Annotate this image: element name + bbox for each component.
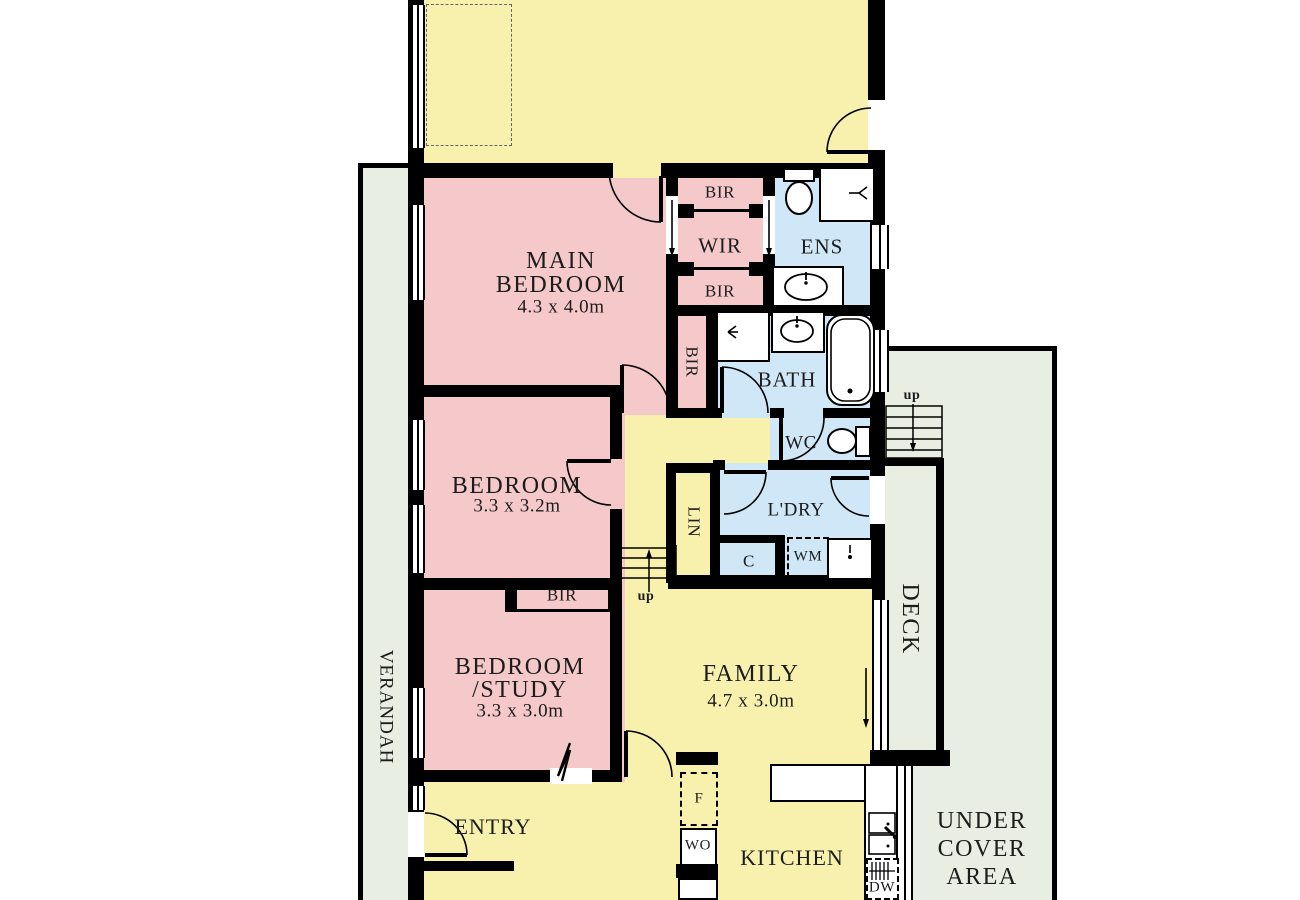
kitchen-sink [869,813,897,854]
label-cupboard: C [743,553,755,570]
label-bir-strip: BIR [684,346,701,377]
slider-arrows [669,200,869,728]
label-bedroom-dims: 3.3 x 3.2m [473,497,560,516]
label-main-bedroom-1: MAIN [526,249,596,273]
label-bir-mid: BIR [705,283,735,300]
shower-head-ens [849,187,867,199]
shower-head-bath [728,326,738,338]
laundry-tub-tap [848,545,852,559]
label-wc: WC [785,434,817,453]
dishwasher-hatch [869,862,895,880]
label-main-bedroom-2: BEDROOM [496,273,627,297]
label-dishwasher: DW [869,881,895,896]
label-ens: ENS [801,237,844,258]
label-wm: WM [794,550,823,565]
label-up-internal: up [638,590,655,604]
label-bedroom-study-2: /STUDY [472,678,568,702]
symbols-overlay [0,0,1300,900]
label-entry: ENTRY [454,816,531,838]
toilet-wc [828,427,870,456]
label-under-cover-2: COVER [938,837,1027,861]
label-bedroom: BEDROOM [452,474,583,498]
stairs-external [886,404,942,458]
label-under-cover-1: UNDER [937,809,1027,833]
label-wall-oven: WO [685,839,711,854]
label-verandah: VERANDAH [377,650,396,765]
floor-plan: MAIN BEDROOM 4.3 x 4.0m BEDROOM 3.3 x 3.… [0,0,1300,900]
label-bedroom-study-dims: 3.3 x 3.0m [476,702,563,721]
label-lin: LIN [686,506,703,537]
label-up-external: up [904,389,921,403]
label-main-bedroom-dims: 4.3 x 4.0m [517,298,604,317]
label-fridge: F [695,792,704,807]
label-family-dims: 4.7 x 3.0m [707,692,794,711]
stairs-internal [622,545,676,592]
label-bir-study: BIR [547,587,577,604]
basin-ens [785,272,827,300]
label-deck: DECK [898,583,922,654]
toilet-ens [784,169,814,214]
label-kitchen: KITCHEN [740,847,844,869]
label-bedroom-study-1: BEDROOM [455,655,586,679]
label-laundry: L'DRY [767,501,824,520]
label-bath: BATH [758,370,817,391]
label-wir: WIR [698,236,742,257]
label-family: FAMILY [703,662,800,686]
label-under-cover-3: AREA [946,865,1017,889]
bathtub-inner [831,319,870,401]
wall-break-symbol [558,743,570,781]
label-bir-top: BIR [705,184,735,201]
basin-bath [781,316,813,342]
